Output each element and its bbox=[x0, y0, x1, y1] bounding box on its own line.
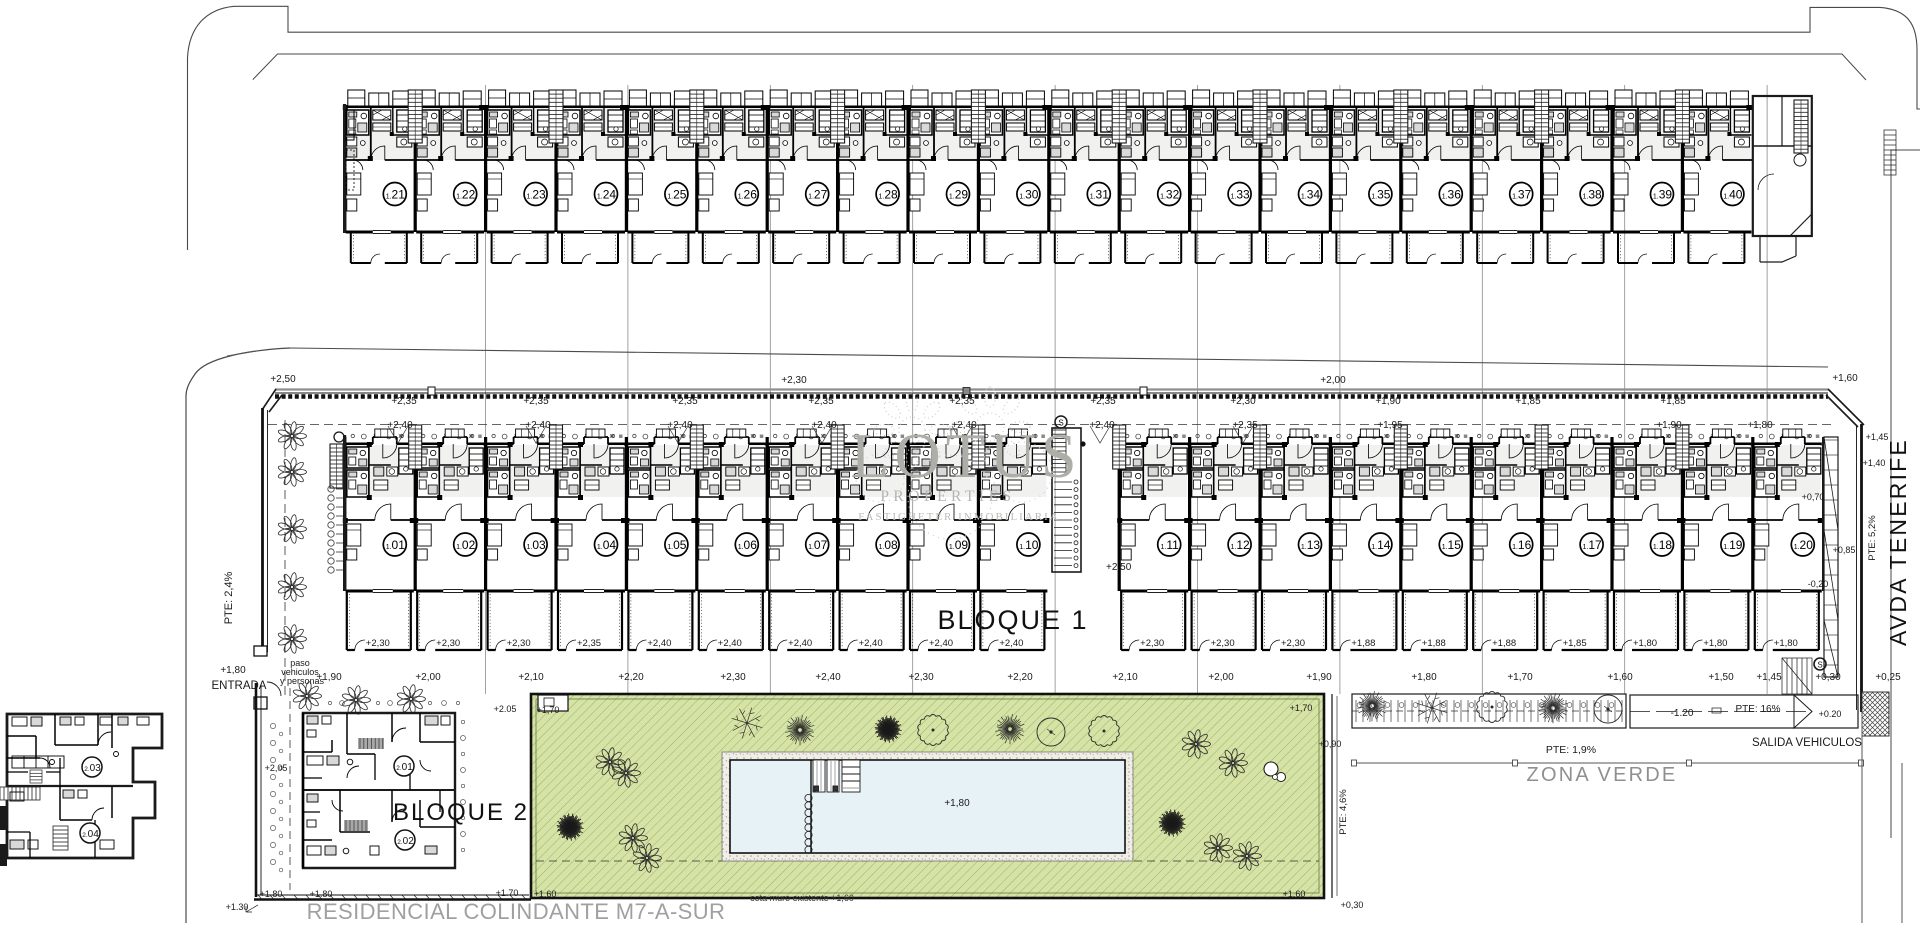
svg-text:+1,70: +1,70 bbox=[1507, 672, 1533, 683]
svg-text:+2,35: +2,35 bbox=[391, 396, 417, 407]
svg-text:+2,20: +2,20 bbox=[618, 672, 644, 683]
svg-text:+0.20: +0.20 bbox=[1819, 709, 1842, 719]
svg-text:-0,20: -0,20 bbox=[1808, 579, 1829, 589]
svg-text:+2,30: +2,30 bbox=[720, 672, 746, 683]
svg-text:+1,50: +1,50 bbox=[1708, 672, 1734, 683]
svg-text:+1,88: +1,88 bbox=[1351, 638, 1375, 649]
svg-text:+1.80: +1.80 bbox=[260, 889, 283, 899]
svg-text:+2,30: +2,30 bbox=[1230, 396, 1256, 407]
svg-text:+2,30: +2,30 bbox=[507, 638, 531, 649]
svg-text:+2,50: +2,50 bbox=[1106, 562, 1132, 573]
svg-text:+1.70: +1.70 bbox=[496, 888, 519, 898]
svg-text:PTE: 5,2%: PTE: 5,2% bbox=[1867, 515, 1878, 561]
svg-text:+2,40: +2,40 bbox=[667, 420, 693, 431]
svg-text:+2,30: +2,30 bbox=[366, 638, 390, 649]
svg-text:+1,90: +1,90 bbox=[1375, 396, 1401, 407]
svg-text:+1.80: +1.80 bbox=[310, 889, 333, 899]
svg-text:+2,35: +2,35 bbox=[523, 396, 549, 407]
svg-text:+2,40: +2,40 bbox=[647, 638, 671, 649]
svg-text:S: S bbox=[1817, 661, 1822, 670]
svg-text:PTE: 1,9%: PTE: 1,9% bbox=[1546, 744, 1596, 756]
svg-text:+1,60: +1,60 bbox=[1832, 373, 1858, 384]
svg-text:+2,40: +2,40 bbox=[929, 638, 953, 649]
svg-text:+2,30: +2,30 bbox=[1281, 638, 1305, 649]
svg-text:+2,35: +2,35 bbox=[808, 396, 834, 407]
svg-text:+2,00: +2,00 bbox=[1208, 672, 1234, 683]
svg-text:ENTRADA: ENTRADA bbox=[212, 680, 267, 692]
svg-text:+1,88: +1,88 bbox=[1492, 638, 1516, 649]
svg-text:+1,80: +1,80 bbox=[1703, 638, 1727, 649]
svg-text:+0,85: +0,85 bbox=[1833, 545, 1856, 555]
svg-text:+1,80: +1,80 bbox=[944, 798, 970, 809]
svg-text:+2,10: +2,10 bbox=[518, 672, 544, 683]
svg-text:BLOQUE 2: BLOQUE 2 bbox=[393, 799, 529, 826]
svg-text:+2,30: +2,30 bbox=[1140, 638, 1164, 649]
svg-text:+2,35: +2,35 bbox=[577, 638, 601, 649]
svg-text:+1,95: +1,95 bbox=[1377, 420, 1403, 431]
svg-text:+2,40: +2,40 bbox=[788, 638, 812, 649]
svg-text:BLOQUE 1: BLOQUE 1 bbox=[937, 605, 1088, 635]
svg-text:SALIDA VEHICULOS: SALIDA VEHICULOS bbox=[1752, 737, 1862, 749]
svg-text:+2,20: +2,20 bbox=[1007, 672, 1033, 683]
svg-text:AVDA TENERIFE: AVDA TENERIFE bbox=[1885, 438, 1911, 646]
svg-text:+0,30: +0,30 bbox=[1341, 900, 1364, 910]
svg-text:RESIDENCIAL COLINDANTE M7-A-SU: RESIDENCIAL COLINDANTE M7-A-SUR bbox=[307, 899, 726, 923]
svg-text:+2.05: +2.05 bbox=[494, 704, 517, 714]
svg-text:+1,80: +1,80 bbox=[220, 665, 246, 676]
svg-text:+1,40: +1,40 bbox=[1863, 458, 1886, 468]
svg-text:+1,45: +1,45 bbox=[1756, 672, 1782, 683]
svg-text:PROPERTIES: PROPERTIES bbox=[880, 488, 1015, 505]
svg-text:+0,30: +0,30 bbox=[1815, 672, 1841, 683]
svg-text:y personas: y personas bbox=[280, 676, 325, 686]
svg-text:+2,50: +2,50 bbox=[270, 374, 296, 385]
svg-text:ZONA VERDE: ZONA VERDE bbox=[1527, 764, 1678, 786]
svg-text:+2,30: +2,30 bbox=[1211, 638, 1235, 649]
svg-text:+2,10: +2,10 bbox=[1112, 672, 1138, 683]
svg-text:+2,35: +2,35 bbox=[1232, 420, 1258, 431]
svg-text:+2,00: +2,00 bbox=[415, 672, 441, 683]
svg-text:-1.20: -1.20 bbox=[1671, 708, 1694, 719]
svg-text:+1,70: +1,70 bbox=[1290, 703, 1313, 713]
svg-text:+2,40: +2,40 bbox=[811, 420, 837, 431]
svg-text:+0,25: +0,25 bbox=[1875, 672, 1901, 683]
svg-text:+2,40: +2,40 bbox=[718, 638, 742, 649]
svg-text:+1,80: +1,80 bbox=[1747, 420, 1773, 431]
svg-text:+1,80: +1,80 bbox=[1411, 672, 1437, 683]
svg-text:FASTIGHETER INMOBILIARIA: FASTIGHETER INMOBILIARIA bbox=[858, 511, 1059, 523]
svg-text:+1,85: +1,85 bbox=[1660, 396, 1686, 407]
svg-text:LOTUS: LOTUS bbox=[850, 420, 1081, 491]
svg-text:+1,60: +1,60 bbox=[1283, 889, 1306, 899]
svg-text:+1,90: +1,90 bbox=[1656, 420, 1682, 431]
svg-text:+1,88: +1,88 bbox=[1422, 638, 1446, 649]
svg-text:+2,00: +2,00 bbox=[1320, 375, 1346, 386]
svg-text:+1,60: +1,60 bbox=[1607, 672, 1633, 683]
svg-text:+1,60: +1,60 bbox=[534, 889, 557, 899]
svg-text:+2,30: +2,30 bbox=[908, 672, 934, 683]
svg-text:+2,40: +2,40 bbox=[999, 638, 1023, 649]
svg-text:+0,70: +0,70 bbox=[1802, 492, 1825, 502]
svg-text:+1,80: +1,80 bbox=[1633, 638, 1657, 649]
svg-text:+1.30: +1.30 bbox=[226, 902, 249, 912]
svg-text:+0,90: +0,90 bbox=[1319, 739, 1342, 749]
svg-text:+2,35: +2,35 bbox=[672, 396, 698, 407]
svg-text:+2,40: +2,40 bbox=[815, 672, 841, 683]
svg-text:+1,85: +1,85 bbox=[1563, 638, 1587, 649]
svg-text:+2,30: +2,30 bbox=[781, 375, 807, 386]
svg-text:+2,05: +2,05 bbox=[265, 763, 288, 773]
svg-text:cota muro existente +1,60: cota muro existente +1,60 bbox=[750, 893, 854, 903]
svg-text:+1,70: +1,70 bbox=[537, 705, 560, 715]
svg-text:+2,35: +2,35 bbox=[1090, 396, 1116, 407]
svg-text:+1,85: +1,85 bbox=[1515, 396, 1541, 407]
svg-text:PTE: 16%: PTE: 16% bbox=[1735, 704, 1780, 715]
svg-text:PTE: 4,6%: PTE: 4,6% bbox=[1338, 789, 1349, 835]
svg-text:PTE: 2,4%: PTE: 2,4% bbox=[223, 571, 235, 624]
svg-text:+2,40: +2,40 bbox=[525, 420, 551, 431]
svg-text:+1,80: +1,80 bbox=[1774, 638, 1798, 649]
svg-text:+2,40: +2,40 bbox=[387, 420, 413, 431]
svg-text:+2,30: +2,30 bbox=[436, 638, 460, 649]
svg-text:+2,40: +2,40 bbox=[1089, 420, 1115, 431]
svg-text:+2,40: +2,40 bbox=[859, 638, 883, 649]
svg-text:+1,90: +1,90 bbox=[1306, 672, 1332, 683]
